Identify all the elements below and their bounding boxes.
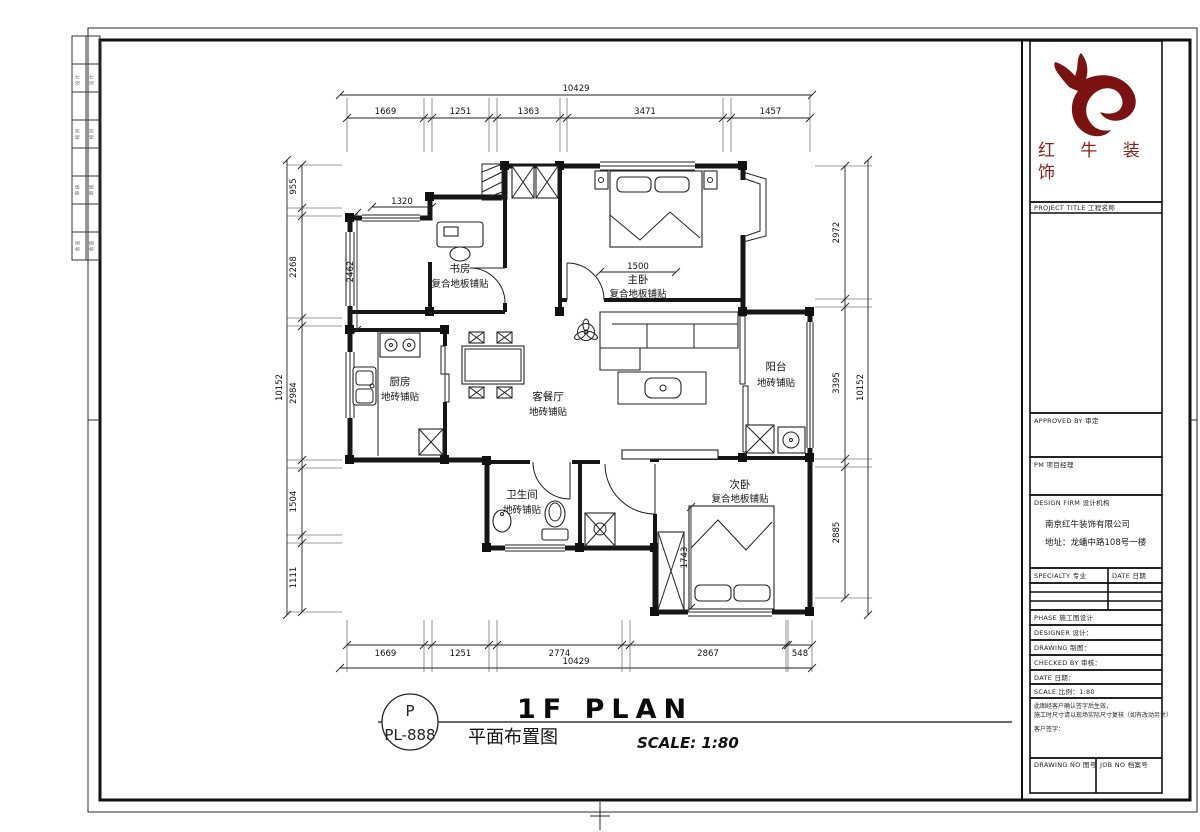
room-name-living: 客餐厅: [532, 390, 564, 403]
floor-plan: 书房 复合地板铺贴 主卧 复合地板铺贴 客餐厅 地砖铺贴 厨房 地砖铺贴 阳台 …: [275, 84, 872, 672]
sofa: [600, 312, 738, 370]
chair: [497, 332, 512, 343]
dim-label: 955: [289, 178, 299, 194]
bed2: [689, 506, 774, 609]
room-name-bed2: 次卧: [730, 478, 751, 491]
dim-label: 1457: [760, 107, 782, 117]
washing-machine: [585, 513, 615, 546]
note-line: 此图经客户确认签字后生效，: [1034, 702, 1112, 710]
strip-cell: 会 签: [88, 240, 95, 251]
drawing-label: DRAWING 制图：: [1034, 643, 1090, 652]
room-floor-bed2: 复合地板铺贴: [711, 493, 769, 505]
dim-label: 2885: [832, 522, 842, 544]
binding-strip: 设 计 设 计 校 对 校 对 审 核 审 核 会 签 会 签: [72, 36, 100, 260]
room-name-balcony: 阳台: [766, 360, 787, 373]
specialty-label: SPECIALTY 专业: [1034, 571, 1087, 580]
double-bed: [595, 171, 717, 247]
dim-label: 3395: [832, 372, 842, 394]
dim-label: 1251: [450, 107, 472, 117]
strip-cell: 审 核: [74, 184, 81, 195]
room-name-study: 书房: [450, 262, 471, 275]
dim-label: 1111: [289, 567, 299, 589]
project-title-box: [1030, 202, 1162, 413]
room-name-kitchen: 厨房: [390, 375, 411, 388]
closet: [536, 166, 558, 198]
dining-table: [462, 332, 524, 398]
strip-cell: 审 核: [88, 184, 95, 195]
balcony-dryer: [778, 427, 805, 453]
firm-address: 地址：龙蟠中路108号一楼: [1045, 537, 1147, 548]
desk: [437, 222, 483, 261]
date-label: DATE 日期: [1112, 572, 1146, 580]
room-name-master: 主卧: [628, 273, 649, 286]
firm-label: DESIGN FIRM 设计机构: [1034, 498, 1110, 507]
ceiling-fan: [573, 319, 599, 341]
chair: [469, 387, 484, 398]
brand-name-line1: 红 牛 装: [1038, 141, 1150, 161]
toilet: [542, 501, 568, 540]
badge-code: PL-888: [384, 726, 435, 744]
job-no-label: JOB NO 档案号: [1099, 760, 1148, 769]
pm-label: PM 项目经理: [1034, 460, 1074, 469]
wardrobe: [658, 532, 684, 610]
dim-label: 2867: [697, 649, 719, 659]
dim-label: 1743: [680, 547, 690, 569]
room-name-bath: 卫生间: [506, 488, 538, 501]
dim-label: 1500: [627, 262, 649, 272]
note-line: 施工时尺寸请以现场实际尺寸复核（如有改动另计）: [1034, 711, 1172, 719]
dim-label: 1251: [450, 649, 472, 659]
dim-label: 1320: [391, 197, 413, 207]
dim-label: 10152: [275, 374, 285, 401]
strip-cell: 设 计: [88, 74, 95, 85]
dim-label: 10429: [562, 657, 589, 667]
date2-label: DATE 日期：: [1034, 674, 1075, 682]
closet: [512, 166, 534, 198]
drawing-no-label: DRAWING NO 图号: [1034, 761, 1097, 769]
room-floor-master: 复合地板铺贴: [609, 288, 667, 300]
balcony-washer: [746, 425, 774, 453]
plan-title-en: 1F PLAN: [517, 694, 693, 725]
project-title-label: PROJECT TITLE 工程名称: [1034, 203, 1115, 212]
scale-label: SCALE 比例：1:80: [1034, 687, 1095, 696]
plan-scale: SCALE: 1:80: [637, 734, 739, 752]
dim-label: 10429: [562, 84, 589, 94]
dim-label: 2268: [289, 256, 299, 278]
dim-label: 10152: [856, 374, 866, 401]
plan-title-cn: 平面布置图: [468, 727, 558, 748]
drawing-sheet: 设 计 设 计 校 对 校 对 审 核 审 核 会 签 会 签 红 牛 装 饰 …: [0, 0, 1200, 832]
chair: [497, 387, 512, 398]
dim-label: 548: [792, 649, 808, 659]
strip-cell: 设 计: [74, 74, 81, 85]
designer-label: DESIGNER 设计：: [1034, 628, 1093, 637]
room-floor-living: 地砖铺贴: [529, 406, 568, 418]
chair: [469, 332, 484, 343]
strip-cell: 会 签: [74, 240, 81, 251]
room-floor-bath: 地砖铺贴: [503, 504, 542, 516]
dim-label: 1669: [375, 649, 397, 659]
strip-cell: 校 对: [88, 128, 95, 139]
room-floor-kitchen: 地砖铺贴: [381, 391, 420, 403]
room-floor-study: 复合地板铺贴: [431, 278, 489, 290]
dim-label: 1669: [375, 107, 397, 117]
dim-label: 3471: [634, 107, 656, 117]
dim-label: 2462: [346, 261, 356, 283]
title-block: 红 牛 装 饰 PROJECT TITLE 工程名称 APPROVED BY 审…: [1030, 41, 1172, 793]
dim-label: 2972: [832, 222, 842, 244]
phase-label: PHASE 施工图设计: [1034, 613, 1094, 622]
note-line: 客户签字：: [1034, 725, 1064, 733]
inner-border: [100, 40, 1190, 800]
dim-label: 1363: [518, 107, 540, 117]
checked-label: CHECKED BY 审核：: [1034, 658, 1101, 667]
badge-letter: P: [405, 702, 414, 720]
dim-label: 2984: [289, 382, 299, 404]
drawing-title: P PL-888 1F PLAN 平面布置图 SCALE: 1:80: [378, 694, 1012, 752]
room-floor-balcony: 地砖铺贴: [757, 377, 796, 389]
dim-label: 1504: [289, 491, 299, 513]
strip-cell: 校 对: [74, 128, 81, 139]
bull-logo-icon: [1054, 53, 1135, 136]
tv-cabinet: [622, 450, 718, 459]
firm-name: 南京红牛装饰有限公司: [1045, 519, 1130, 530]
approved-label: APPROVED BY 审定: [1034, 416, 1099, 425]
rug: [618, 372, 706, 404]
brand-name-line2: 饰: [1038, 163, 1055, 183]
floorplan-canvas: 设 计 设 计 校 对 校 对 审 核 审 核 会 签 会 签 红 牛 装 饰 …: [0, 0, 1200, 832]
